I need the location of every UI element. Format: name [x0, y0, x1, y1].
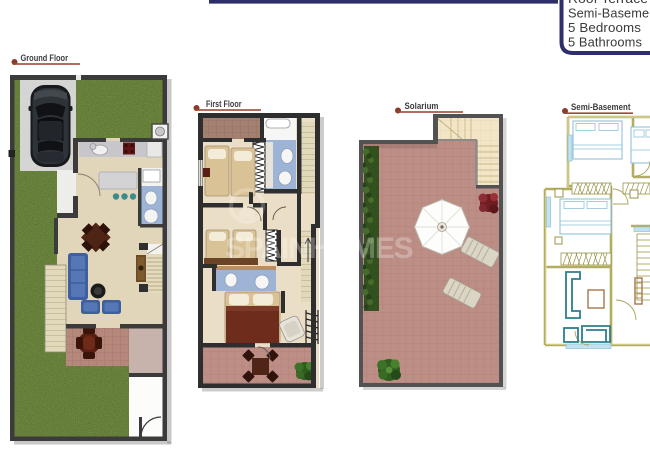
svg-text:First Floor: First Floor — [206, 98, 242, 109]
svg-text:5 Bedrooms: 5 Bedrooms — [568, 20, 641, 35]
svg-text:Solarium: Solarium — [405, 100, 439, 111]
svg-text:Semi-Basement: Semi-Basement — [571, 101, 631, 112]
svg-text:Ground Floor: Ground Floor — [21, 52, 69, 63]
svg-text:5 Bathrooms: 5 Bathrooms — [568, 34, 642, 49]
svg-text:SPAINHOMES: SPAINHOMES — [225, 232, 413, 265]
svg-text:Semi-Basement: Semi-Basement — [568, 5, 650, 20]
